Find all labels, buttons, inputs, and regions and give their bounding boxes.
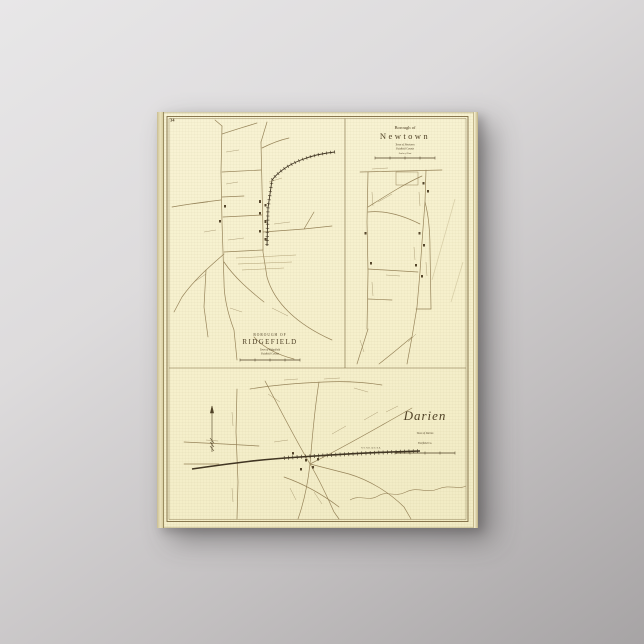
ridgefield-railroad bbox=[267, 152, 335, 246]
darien-title-block: Darien Town of Darien Fairfield Co. bbox=[403, 408, 447, 445]
newtown-street-label-marks bbox=[360, 168, 427, 352]
darien-subtitle1: Town of Darien bbox=[417, 432, 434, 435]
newtown-title-line2: Newtown bbox=[380, 131, 430, 141]
newtown-subtitle1: Town of Newtown bbox=[395, 144, 415, 147]
newtown-title-block: Borough of Newtown Town of Newtown Fairf… bbox=[380, 125, 430, 155]
canvas-left-edge bbox=[157, 112, 164, 528]
newtown-crease-marks bbox=[432, 199, 463, 302]
ridgefield-title-line2: RIDGEFIELD bbox=[242, 338, 297, 346]
darien-title: Darien bbox=[403, 408, 447, 423]
newtown-scale-bar bbox=[375, 157, 435, 160]
newtown-title-line1: Borough of bbox=[394, 125, 416, 130]
ridgefield-buildings bbox=[219, 200, 267, 241]
darien-map: Darien Town of Darien Fairfield Co. bbox=[184, 378, 466, 519]
ridgefield-street-label-marks bbox=[192, 150, 290, 316]
canvas-top-rim bbox=[164, 112, 473, 114]
product-backdrop: 34 bbox=[0, 0, 644, 644]
map-sheet: 34 bbox=[164, 112, 473, 528]
canvas-bottom-rim bbox=[164, 526, 473, 528]
ridgefield-title-line1: BOROUGH OF bbox=[253, 333, 286, 337]
darien-street-label-marks bbox=[206, 378, 398, 504]
ridgefield-roads bbox=[172, 120, 332, 360]
ridgefield-map: BOROUGH OF RIDGEFIELD Town of Ridgefield… bbox=[172, 120, 335, 362]
ridgefield-subtitle1: Town of Ridgefield bbox=[260, 349, 281, 352]
darien-railroad-label: N.Y. N.H. & H. R.R. bbox=[361, 447, 381, 450]
darien-roads bbox=[184, 381, 412, 519]
map-border bbox=[167, 117, 468, 522]
newtown-scale-label: Scale of Feet bbox=[399, 152, 412, 155]
ridgefield-scale-bar bbox=[240, 359, 300, 362]
page-number: 34 bbox=[170, 118, 175, 123]
canvas-print: 34 bbox=[157, 112, 478, 528]
canvas-right-edge bbox=[473, 112, 478, 528]
ridgefield-subtitle2: Fairfield County bbox=[260, 353, 280, 356]
north-arrow-icon bbox=[210, 406, 214, 452]
ridgefield-note-marks bbox=[236, 255, 296, 270]
newtown-subtitle2: Fairfield County bbox=[395, 148, 415, 151]
darien-stream bbox=[350, 486, 466, 500]
darien-subtitle2: Fairfield Co. bbox=[417, 442, 432, 445]
atlas-page-svg: 34 bbox=[164, 112, 473, 528]
newtown-roads bbox=[357, 170, 442, 364]
newtown-map: Borough of Newtown Town of Newtown Fairf… bbox=[357, 125, 463, 364]
ridgefield-title-block: BOROUGH OF RIDGEFIELD Town of Ridgefield… bbox=[242, 333, 297, 356]
